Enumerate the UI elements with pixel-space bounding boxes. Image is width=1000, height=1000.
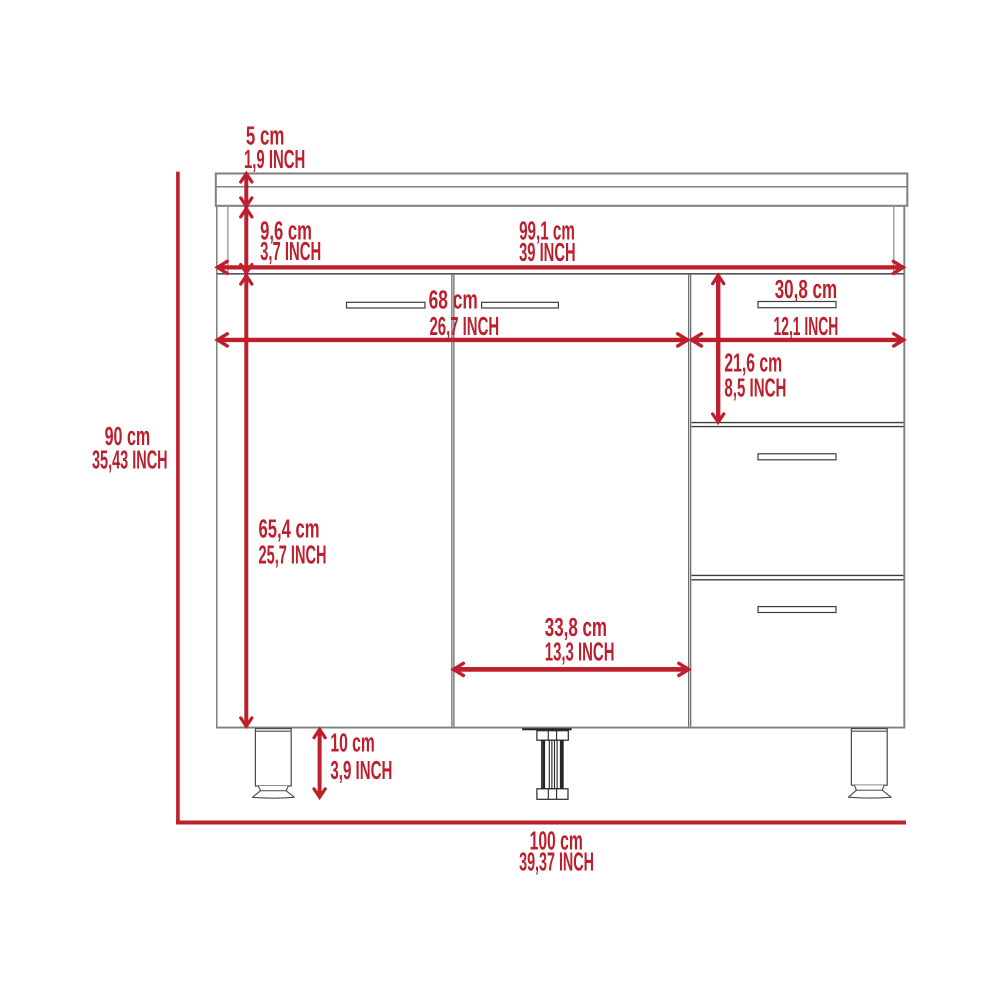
svg-text:3,9 INCH: 3,9 INCH <box>330 757 392 785</box>
svg-text:35,43 INCH: 35,43 INCH <box>92 447 168 475</box>
svg-text:25,7 INCH: 25,7 INCH <box>259 542 327 570</box>
svg-text:8,5 INCH: 8,5 INCH <box>724 374 786 402</box>
svg-text:30,8 cm: 30,8 cm <box>775 276 837 304</box>
svg-text:3,7 INCH: 3,7 INCH <box>260 238 321 266</box>
svg-text:39,37 INCH: 39,37 INCH <box>519 849 594 877</box>
svg-text:26,7 INCH: 26,7 INCH <box>430 313 500 341</box>
svg-text:13,3 INCH: 13,3 INCH <box>545 639 615 667</box>
svg-text:1,9 INCH: 1,9 INCH <box>244 146 305 174</box>
svg-text:68 cm: 68 cm <box>429 287 478 315</box>
svg-text:39 INCH: 39 INCH <box>519 239 576 267</box>
svg-text:12,1 INCH: 12,1 INCH <box>774 313 839 341</box>
svg-text:21,6 cm: 21,6 cm <box>724 349 782 377</box>
svg-text:10 cm: 10 cm <box>330 730 374 758</box>
svg-text:65,4 cm: 65,4 cm <box>259 516 320 544</box>
